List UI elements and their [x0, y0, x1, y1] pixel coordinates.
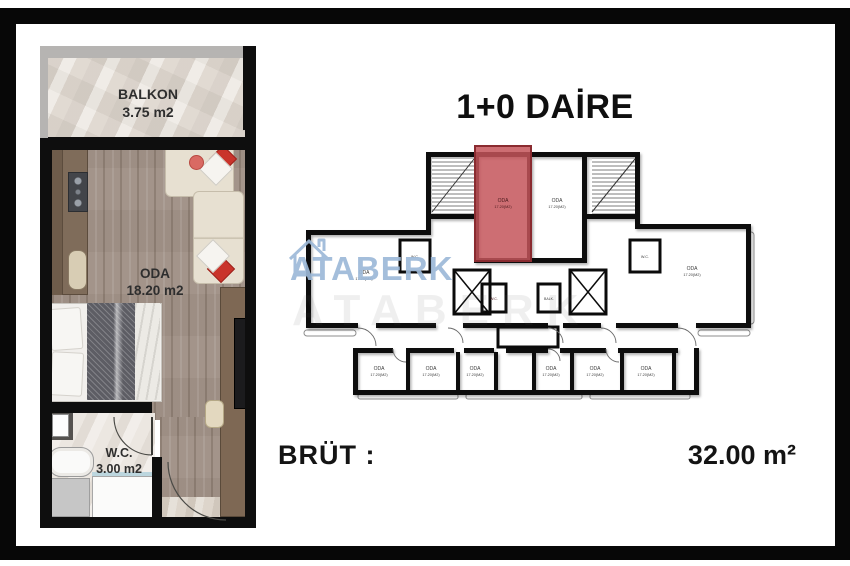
room-area-tiny: 17.20(M2): [422, 373, 440, 377]
room-area-tiny: 17.20(M2): [586, 373, 604, 377]
room-label-tiny: ODA: [498, 198, 510, 204]
watermark: ATABERK: [290, 250, 453, 288]
room-area-tiny: 17.20(M2): [466, 373, 484, 377]
watermark-echo: ATABERK: [292, 286, 732, 336]
room-label-tiny: ODA: [590, 366, 602, 372]
room-label-tiny: ODA: [687, 266, 699, 272]
room-area-tiny: 17.20(M2): [370, 373, 388, 377]
room-area-tiny: 17.20(M2): [548, 205, 566, 209]
house-logo-icon: [286, 233, 332, 279]
room-label-tiny: ODA: [470, 366, 482, 372]
room-label-tiny: ODA: [374, 366, 386, 372]
room-area-tiny: 17.20(M2): [494, 205, 512, 209]
room-label-tiny: ODA: [641, 366, 653, 372]
gross-area-label: BRÜT :: [278, 440, 375, 471]
room-area-tiny: 17.20(M2): [683, 273, 701, 277]
room-area-tiny: 17.20(M2): [637, 373, 655, 377]
gross-area-value: 32.00 m²: [600, 440, 796, 471]
unit-floorplan: BALKON 3.75 m2 ODA 18.20 m2 W.C. 3.00 m2: [38, 45, 258, 528]
room-label-tiny: ODA: [546, 366, 558, 372]
door-arcs: [38, 45, 258, 528]
room-label-tiny: ODA: [426, 366, 438, 372]
room-label-tiny: ODA: [552, 198, 564, 204]
wc-label-tiny: W.C.: [641, 255, 649, 259]
staircases: [432, 158, 635, 214]
plan-title: 1+0 DAİRE: [375, 88, 715, 127]
wc-door-arc: [114, 417, 152, 455]
room-area-tiny: 17.20(M2): [542, 373, 560, 377]
entry-door-arc: [168, 462, 226, 520]
